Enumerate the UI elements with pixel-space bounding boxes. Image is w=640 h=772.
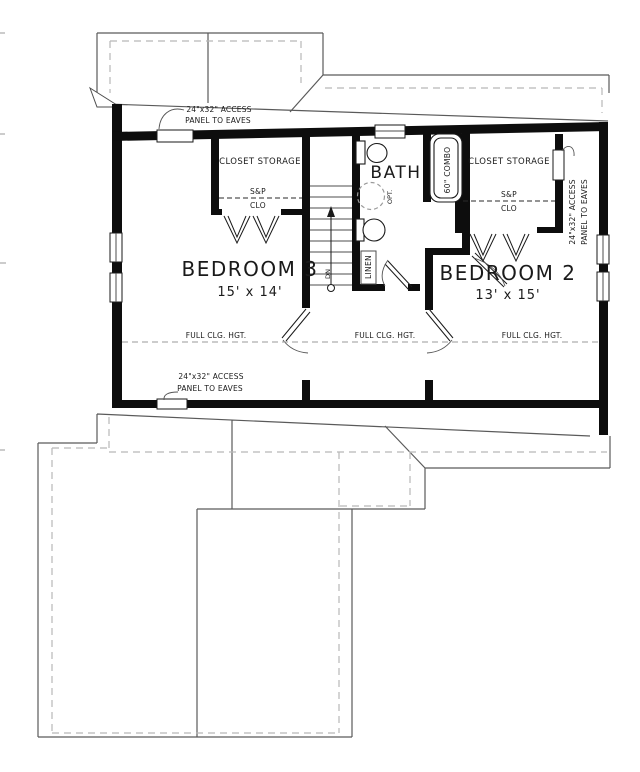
access-panel-right (553, 150, 564, 180)
bedroom3-dims: 15' x 14' (217, 285, 282, 300)
bath-door (382, 260, 412, 290)
access-note-right-line1: 24"x32" ACCESS (568, 179, 577, 244)
window (110, 233, 122, 262)
floor-plan-page: DN 60" COMBO (0, 0, 640, 772)
full-ceiling-note-right: FULL CLG. HGT. (502, 331, 563, 340)
closet-right-label: CLOSET STORAGE (468, 157, 550, 167)
full-ceiling-note-center: FULL CLG. HGT. (355, 331, 416, 340)
window (110, 273, 122, 302)
closet-left-shelf: S&P (250, 187, 266, 196)
closet-left-label: CLOSET STORAGE (219, 157, 301, 167)
bathtub: 60" COMBO (430, 134, 462, 202)
window (597, 235, 609, 264)
access-note-top-line1: 24"x32" ACCESS (186, 105, 251, 114)
access-note-bottom-line1: 24"x32" ACCESS (178, 372, 243, 381)
ceiling-notes: FULL CLG. HGT. FULL CLG. HGT. FULL CLG. … (186, 331, 563, 340)
access-note-top: 24"x32" ACCESS PANEL TO EAVES (159, 105, 252, 129)
access-note-top-line2: PANEL TO EAVES (185, 116, 251, 125)
edge-tick-marks (0, 33, 6, 450)
access-panel-bottom (157, 399, 187, 409)
access-note-right-line2: PANEL TO EAVES (580, 179, 589, 245)
upper-roof-outline (90, 33, 609, 121)
window (375, 125, 405, 138)
window (597, 272, 609, 301)
lower-roof-outline (38, 414, 610, 737)
linen-label: LINEN (364, 255, 373, 279)
access-panel-top (157, 130, 193, 142)
linen-closet: LINEN (361, 251, 376, 284)
bath-name: BATH (370, 163, 421, 183)
access-note-right: 24"x32" ACCESS PANEL TO EAVES (562, 146, 589, 244)
access-note-bottom: 24"x32" ACCESS PANEL TO EAVES (164, 372, 244, 400)
bedroom3-door (282, 309, 310, 353)
toilet (356, 219, 385, 241)
sink (356, 141, 387, 164)
tub-label: 60" COMBO (443, 147, 452, 194)
closet-left-abbr: CLO (250, 201, 266, 210)
floor-plan-drawing: DN 60" COMBO (0, 0, 640, 772)
bedroom3-name: BEDROOM 3 (182, 257, 319, 281)
bedroom2-name: BEDROOM 2 (440, 261, 577, 285)
bedroom2-dims: 13' x 15' (475, 288, 540, 303)
closet-right-shelf: S&P (501, 190, 517, 199)
access-note-bottom-line2: PANEL TO EAVES (177, 384, 243, 393)
closet-right-abbr: CLO (501, 204, 517, 213)
full-ceiling-note-left: FULL CLG. HGT. (186, 331, 247, 340)
stairs-down-label: DN (324, 269, 332, 279)
bedroom2-door (426, 309, 453, 353)
optional-shower: OPT. (358, 183, 395, 210)
optional-label: OPT. (386, 190, 394, 204)
